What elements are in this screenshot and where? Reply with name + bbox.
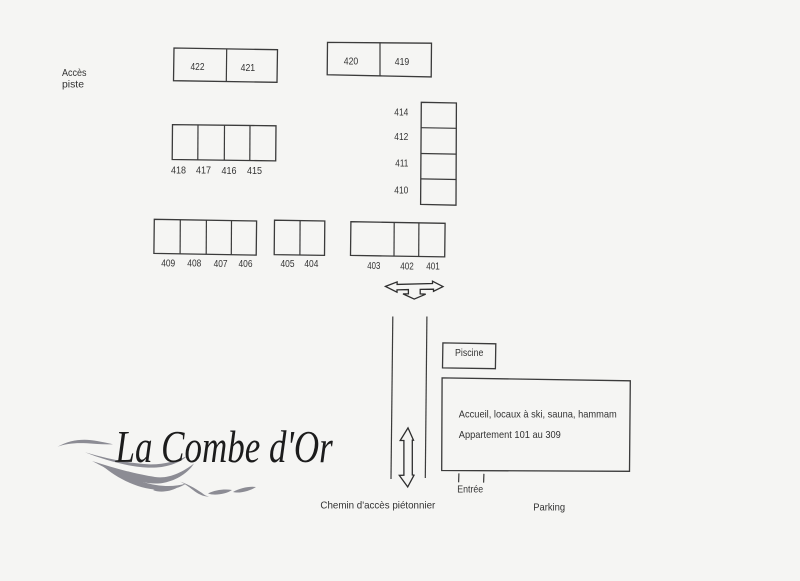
svg-text:414: 414 xyxy=(394,107,408,118)
svg-text:403: 403 xyxy=(367,261,380,272)
svg-text:418: 418 xyxy=(171,166,186,177)
svg-text:piste: piste xyxy=(62,80,84,91)
svg-text:404: 404 xyxy=(304,259,318,270)
svg-text:405: 405 xyxy=(281,259,295,270)
svg-text:409: 409 xyxy=(161,258,175,269)
svg-text:416: 416 xyxy=(222,166,237,177)
svg-text:Piscine: Piscine xyxy=(455,348,484,359)
svg-text:406: 406 xyxy=(239,259,253,270)
svg-text:Entrée: Entrée xyxy=(457,485,483,496)
svg-text:Parking: Parking xyxy=(533,503,565,514)
svg-text:401: 401 xyxy=(426,262,440,273)
svg-text:407: 407 xyxy=(214,259,228,270)
svg-text:Chemin d'accès piétonnier: Chemin d'accès piétonnier xyxy=(320,501,435,512)
svg-text:408: 408 xyxy=(187,259,201,270)
svg-text:411: 411 xyxy=(395,159,408,170)
svg-text:415: 415 xyxy=(247,166,262,177)
svg-text:422: 422 xyxy=(191,62,205,73)
svg-text:La Combe d'Or: La Combe d'Or xyxy=(115,421,334,472)
svg-text:420: 420 xyxy=(344,56,359,67)
svg-text:412: 412 xyxy=(394,132,408,143)
svg-text:Accueil, locaux à ski, sauna,: Accueil, locaux à ski, sauna, hammam xyxy=(459,410,617,421)
svg-text:417: 417 xyxy=(196,166,211,177)
svg-text:410: 410 xyxy=(394,185,408,196)
svg-text:Accès: Accès xyxy=(62,68,87,79)
svg-text:421: 421 xyxy=(241,63,256,74)
svg-text:419: 419 xyxy=(395,57,410,68)
svg-text:Appartement 101 au 309: Appartement 101 au 309 xyxy=(459,430,561,441)
svg-text:402: 402 xyxy=(400,261,414,272)
